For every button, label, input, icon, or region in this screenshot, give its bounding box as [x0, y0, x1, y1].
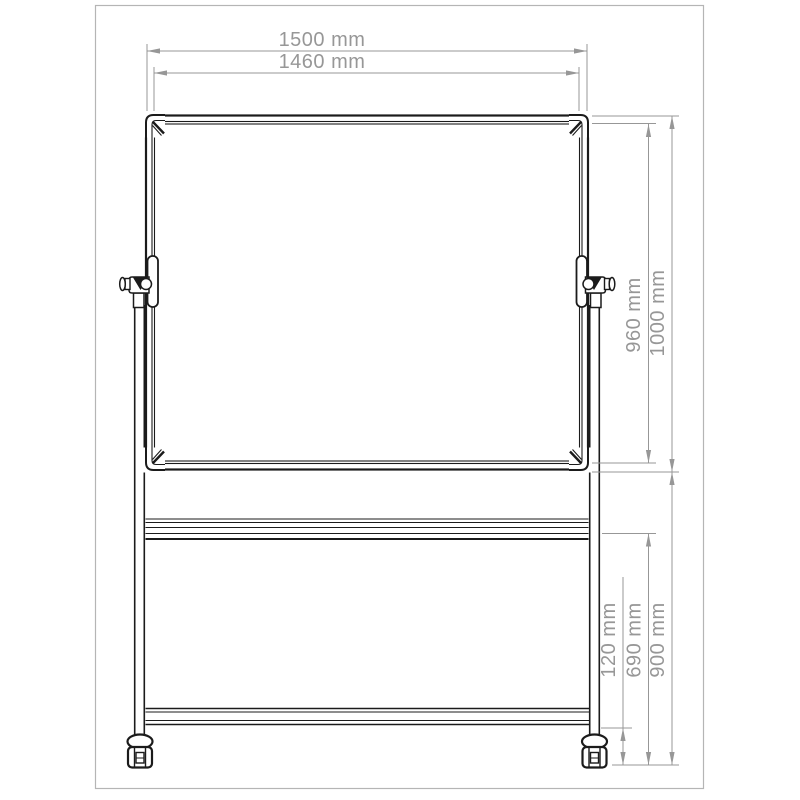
- whiteboard-board: [144, 113, 591, 473]
- label-stand-height: 900 mm: [647, 602, 669, 677]
- pivot-right: [577, 256, 615, 308]
- label-board-inner-height: 960 mm: [623, 277, 645, 352]
- pivot-sleeve-left: [134, 293, 145, 308]
- caster-left: [128, 735, 153, 768]
- pivot-hinge-left: [141, 279, 152, 290]
- whiteboard-technical-drawing: 1500 mm 1460 mm 960 mm 1000 mm 120 mm 69…: [0, 0, 800, 800]
- knob-disc-right: [609, 278, 615, 291]
- label-rail-height: 690 mm: [624, 602, 646, 677]
- corner-cap-bottom-right: [569, 448, 591, 473]
- pivot-hinge-right: [583, 279, 594, 290]
- crossbar-upper: [146, 519, 589, 539]
- pivot-sleeve-right: [591, 293, 602, 308]
- label-caster-clearance: 120 mm: [598, 602, 620, 677]
- label-overall-width: 1500 mm: [279, 29, 366, 51]
- pivot-left: [120, 256, 158, 308]
- corner-cap-top-right: [569, 113, 591, 138]
- caster-right: [582, 735, 607, 768]
- corner-cap-top-left: [144, 113, 166, 138]
- label-board-overall-height: 1000 mm: [647, 270, 669, 357]
- stand-leg-left: [135, 305, 145, 737]
- drawing-page: 1500 mm 1460 mm 960 mm 1000 mm 120 mm 69…: [0, 0, 800, 800]
- board-outer-frame: [146, 116, 588, 470]
- knob-disc-left: [120, 278, 126, 291]
- crossbar-lower: [146, 709, 590, 725]
- corner-cap-bottom-left: [144, 448, 166, 473]
- label-inner-width: 1460 mm: [279, 51, 366, 73]
